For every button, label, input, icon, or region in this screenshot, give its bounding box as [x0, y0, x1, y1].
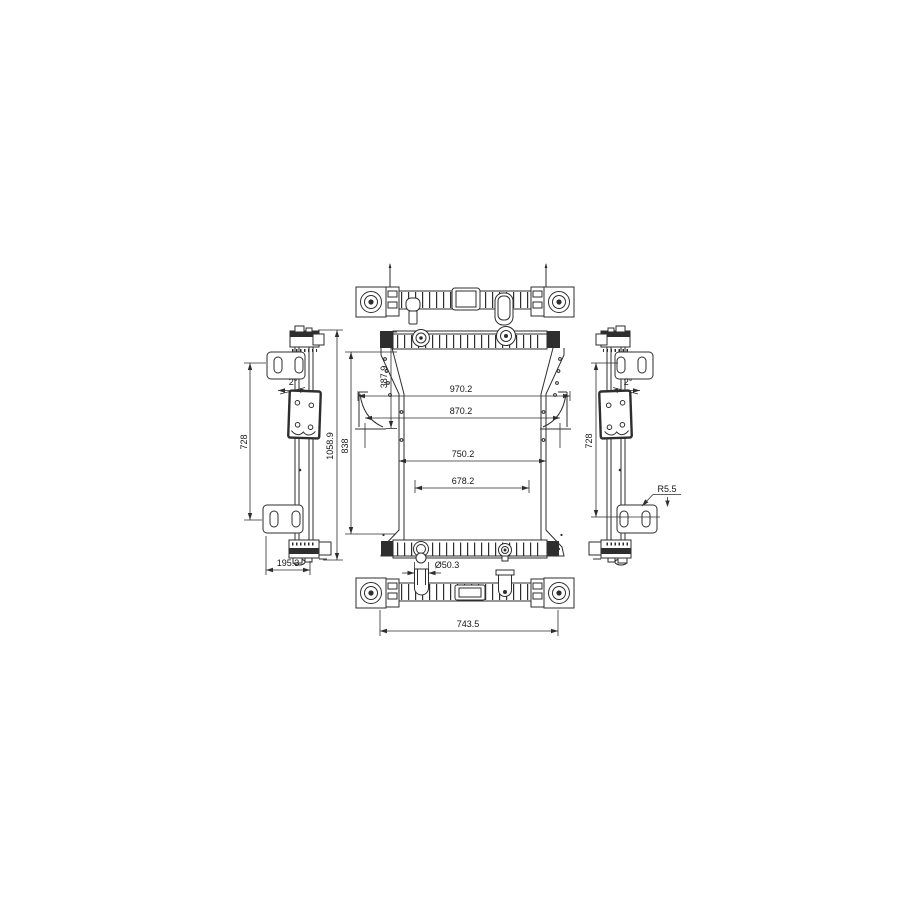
- side-bracket-right: [541, 348, 564, 556]
- center-boss-bottom: [455, 585, 485, 600]
- dim-bracket-span-left: 728: [239, 363, 266, 520]
- rivet-dot: [299, 469, 302, 472]
- clamp-left-bottom: [386, 579, 399, 607]
- dim-label-outlet-pipe-diameter: Ø50.3: [435, 560, 460, 570]
- dim-inner-core-width: 678.2: [415, 476, 529, 493]
- filler-cap-left: [413, 330, 430, 347]
- dim-label-bottom-mount-width: 743.5: [457, 619, 480, 629]
- dim-core-width: 750.2: [399, 449, 546, 463]
- lower-slot-bracket: [263, 505, 303, 533]
- dim-bottom-mount-width: 743.5: [380, 610, 558, 636]
- mount-bushing-left-bottom: [356, 578, 386, 608]
- fitting-under-right: [495, 293, 513, 325]
- clamp-right: [531, 287, 544, 316]
- dim-label-core-height: 838: [340, 438, 350, 453]
- dim-label-side-depth: 195.3: [277, 558, 300, 568]
- mount-bushing-right: [544, 287, 574, 317]
- dim-label-tilt-angle-right: 2°: [624, 377, 633, 387]
- dim-label-tilt-angle-left: 2°: [289, 377, 298, 387]
- left-side-view: [263, 326, 331, 565]
- dim-overall-width: 970.2: [358, 384, 570, 401]
- dim-label-core-width: 750.2: [452, 449, 475, 459]
- mounting-flange-left: [355, 392, 386, 429]
- filler-neck-top: [452, 288, 480, 310]
- dim-label-overall-height: 1058.9: [325, 432, 335, 460]
- inlet-fitting-bottom: [496, 570, 514, 597]
- upper-slot-bracket: [267, 352, 305, 379]
- outlet-pipe: [415, 569, 429, 595]
- bottom-tank: [381, 540, 559, 558]
- side-profile: [263, 326, 331, 565]
- top-tank: [380, 331, 560, 349]
- mount-bushing-left: [356, 287, 386, 317]
- dim-label-bracket-corner-radius: R5.5: [657, 484, 676, 494]
- right-side-view: [589, 326, 657, 565]
- dim-outlet-pipe-diameter: Ø50.3: [402, 560, 459, 578]
- radiator-orthographic-drawing: 970.2 870.2 750.2 678.2: [0, 0, 900, 900]
- dim-label-mounting-width: 870.2: [450, 406, 473, 416]
- dim-label-overall-width: 970.2: [450, 384, 473, 394]
- mounting-plate: [288, 390, 321, 438]
- dim-label-inner-core-width: 678.2: [452, 476, 475, 486]
- dim-label-top-to-flange-height: 387.9: [379, 366, 389, 389]
- bottom-view: [356, 569, 574, 608]
- clamp-right-bottom: [531, 579, 544, 607]
- side-profile-mirrored: [589, 326, 657, 565]
- fitting-under-left: [406, 298, 420, 324]
- dim-label-bracket-span-left: 728: [239, 434, 249, 449]
- dim-bracket-corner-radius: R5.5: [642, 484, 681, 507]
- top-view: [356, 263, 574, 325]
- dim-mounting-width: 870.2: [365, 406, 560, 448]
- technical-drawing-canvas: 970.2 870.2 750.2 678.2: [0, 0, 900, 900]
- dim-label-bracket-span-right: 728: [584, 433, 594, 448]
- drain-fitting-left: [414, 542, 429, 564]
- mount-bushing-right-bottom: [544, 578, 574, 608]
- filler-cap-right: [497, 327, 516, 346]
- clamp-left: [386, 287, 399, 316]
- front-view: [355, 327, 571, 564]
